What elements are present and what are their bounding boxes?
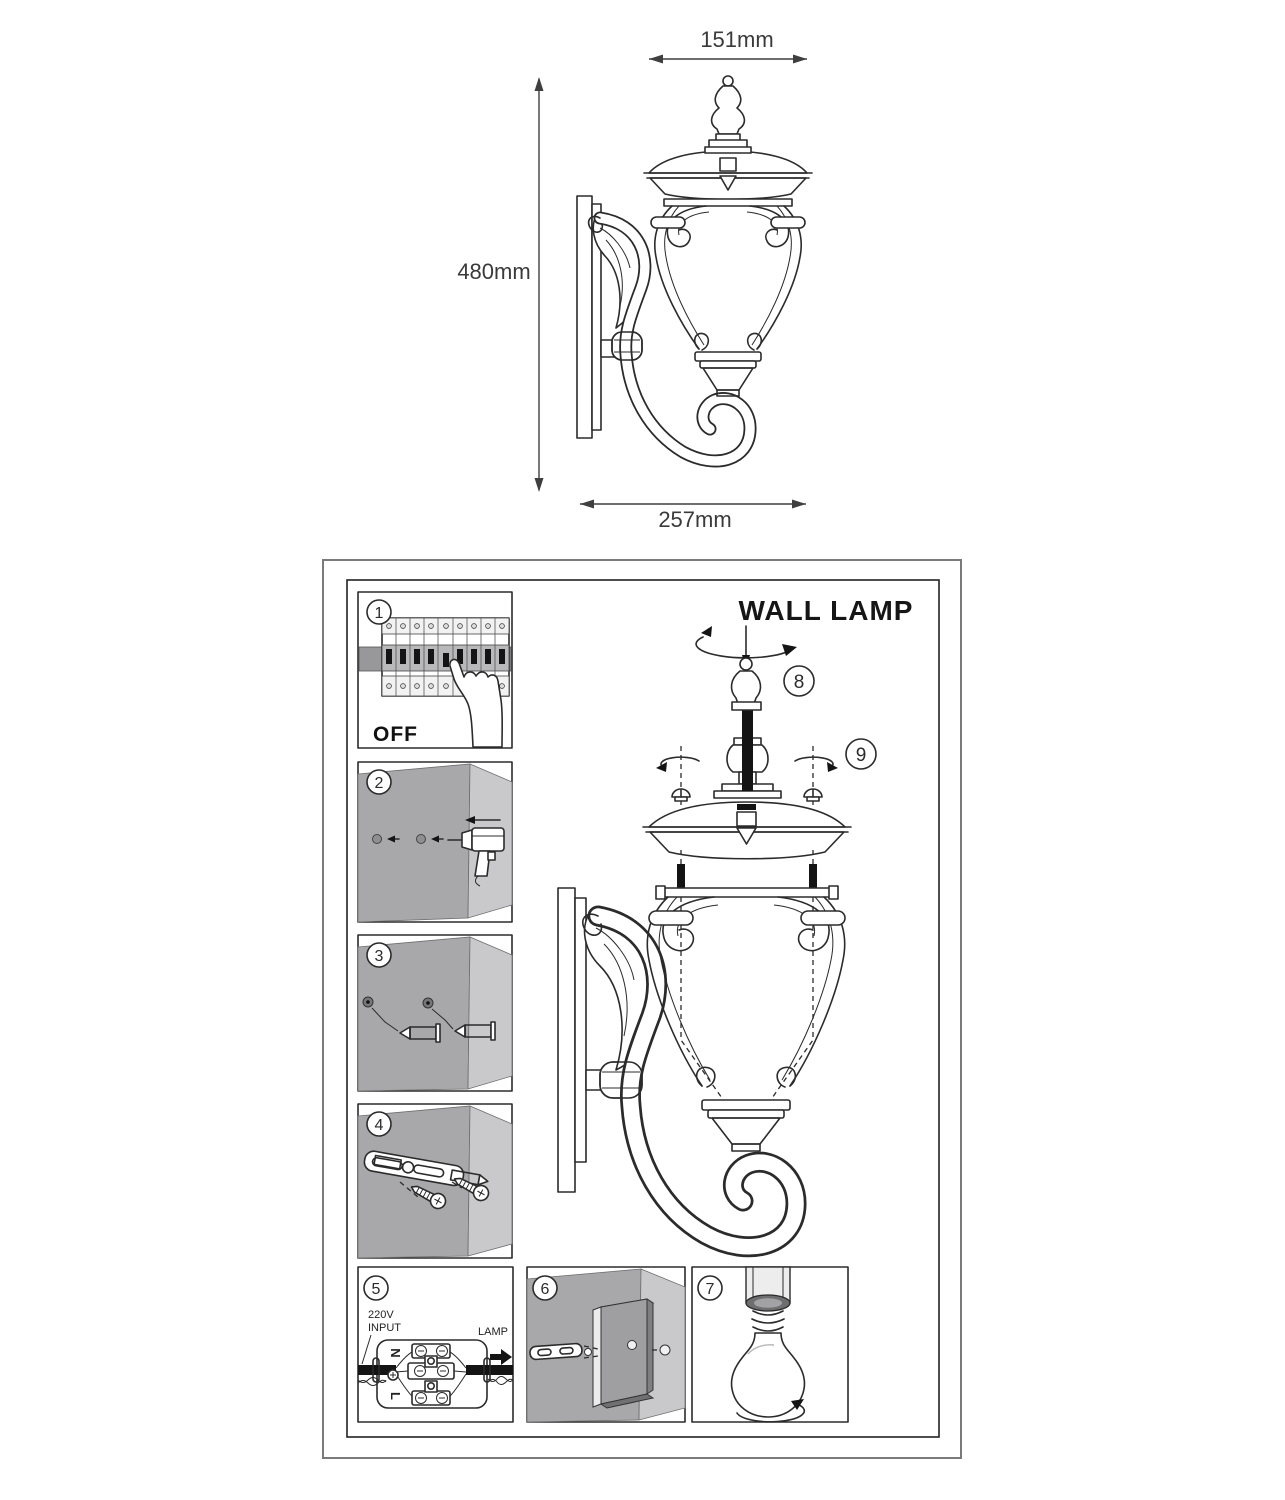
lantern-cap	[643, 802, 851, 859]
arrow-right-icon	[793, 55, 807, 64]
threaded-rod	[742, 708, 753, 791]
dim-width-bottom: 257mm	[580, 500, 806, 533]
step-number: 8	[794, 672, 805, 693]
assembly-diagram: WALL LAMP	[558, 595, 913, 1247]
chevron-down-icon	[720, 176, 736, 190]
finial	[731, 658, 761, 710]
lamp-label: LAMP	[478, 1326, 508, 1338]
bracket-icon	[530, 1343, 583, 1360]
arrow-up-icon	[535, 77, 544, 91]
lamp-side-view	[577, 76, 812, 461]
step-7: 7	[692, 1267, 848, 1422]
step-number: 6	[541, 1281, 550, 1298]
step-number: 1	[375, 605, 384, 622]
dim-height: 480mm	[457, 77, 543, 492]
neutral-label: N	[388, 1348, 403, 1357]
dimension-drawing: 151mm 480mm 257mm	[457, 27, 812, 532]
off-label: OFF	[373, 723, 418, 746]
input-voltage-label-line1: 220V	[368, 1309, 394, 1321]
bottom-width-label: 257mm	[658, 507, 731, 532]
dim-width-top: 151mm	[649, 27, 807, 64]
step-1: OFF 1	[358, 592, 512, 748]
step-number: 4	[375, 1117, 384, 1134]
sheet-canvas: 151mm 480mm 257mm	[0, 0, 1285, 1500]
ribbed-cone	[712, 1118, 780, 1144]
backplate-box	[601, 1299, 647, 1404]
chevron-down-icon	[737, 828, 756, 844]
step-number: 9	[856, 745, 867, 766]
step-2: 2	[358, 762, 512, 922]
step-number: 7	[706, 1281, 715, 1298]
instruction-sheet: 151mm 480mm 257mm	[0, 0, 1285, 1500]
threaded-post	[809, 864, 817, 888]
lantern-body	[647, 897, 845, 1151]
step-number: 5	[372, 1281, 381, 1298]
input-voltage-label-line2: INPUT	[368, 1322, 401, 1334]
ground-symbol-icon	[388, 1370, 398, 1380]
ribbed-cone	[703, 368, 753, 390]
arrow-down-icon	[535, 478, 544, 492]
top-width-label: 151mm	[700, 27, 773, 52]
step-5: 220V INPUT LAMP	[358, 1267, 513, 1422]
live-label: L	[388, 1392, 403, 1400]
threaded-post	[677, 864, 685, 888]
lantern-body	[644, 76, 812, 396]
height-label: 480mm	[457, 259, 530, 284]
finial-assembly	[714, 658, 781, 798]
wall-plate	[577, 196, 592, 438]
step-6: 6	[527, 1267, 685, 1422]
step-number: 3	[375, 948, 384, 965]
step-4: 4	[358, 1104, 512, 1258]
step-number: 2	[375, 775, 384, 792]
diagram-title: WALL LAMP	[739, 595, 914, 626]
finial	[705, 76, 751, 153]
arrow-left-icon	[649, 55, 663, 64]
step-3: 3	[358, 935, 512, 1091]
instruction-panel: OFF 1	[323, 560, 961, 1458]
